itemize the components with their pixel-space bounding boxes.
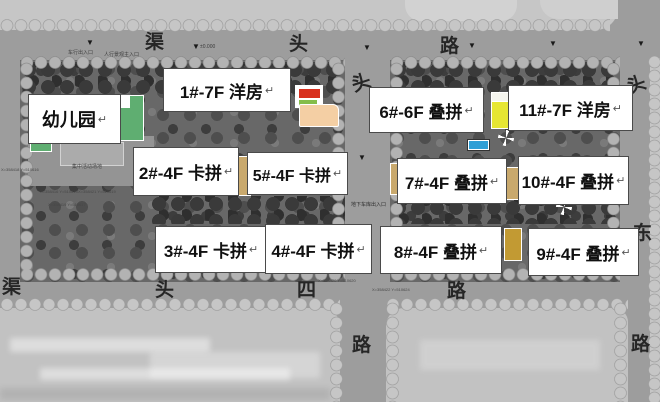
tree-row — [386, 302, 399, 402]
survey-coordinate: X=358421 Y=510619 — [78, 190, 116, 194]
return-mark: ↵ — [265, 84, 274, 97]
return-mark: ↵ — [613, 102, 622, 115]
pinwheel-icon — [498, 130, 514, 146]
peach-building-highlight — [299, 104, 339, 127]
building-label: 10#-4F 叠拼 — [522, 168, 615, 193]
entrance-annotation: 车行出入口 — [68, 51, 93, 57]
label-box-building-2: 2#-4F 卡拼↵ — [133, 147, 239, 196]
building-label: 4#-4F 卡拼 — [271, 237, 354, 262]
return-mark: ↵ — [98, 113, 107, 126]
gold-building-highlight — [504, 228, 522, 261]
building-label: 2#-4F 卡拼 — [139, 159, 222, 184]
building-label: 8#-4F 叠拼 — [394, 238, 477, 263]
label-box-building-10: 10#-4F 叠拼↵ — [518, 156, 629, 205]
label-box-building-6: 6#-6F 叠拼↵ — [369, 87, 484, 133]
road-label: 渠 — [145, 33, 164, 52]
survey-coordinate: X=358416 Y=510613 — [40, 190, 78, 194]
label-box-building-3: 3#-4F 卡拼↵ — [155, 226, 267, 273]
road-label: 渠 — [2, 278, 21, 297]
entrance-arrow-icon: ▼ — [363, 44, 371, 52]
return-mark: ↵ — [356, 243, 365, 256]
road-label: 路 — [440, 37, 459, 56]
road-label: 路 — [631, 335, 650, 354]
survey-coordinate: X=358419 Y=510617 — [48, 203, 86, 207]
site-plan-map: 渠 头 路 头 头 东 路 渠 头 四 路 路 ▼ ▼ ▼ ▼ ▼ ▼ ▼ 车行… — [0, 0, 660, 402]
road-label: 四 — [297, 281, 316, 300]
tree-row — [390, 56, 620, 69]
building-label: 1#-7F 洋房 — [180, 78, 263, 103]
cyan-pool-highlight — [468, 140, 489, 150]
road-label: 路 — [352, 336, 371, 355]
building-label: 3#-4F 卡拼 — [164, 237, 247, 262]
red-building-highlight — [298, 88, 321, 99]
entrance-arrow-icon: ▼ — [86, 39, 94, 47]
entrance-arrow-icon: ▼ — [358, 154, 366, 162]
label-box-kindergarten: 幼儿园↵ — [28, 94, 121, 144]
entrance-annotation: 人行景观主入口 — [104, 53, 139, 59]
survey-coordinate: X=358422 Y=510624 — [372, 288, 410, 292]
tree-row — [330, 302, 343, 402]
tree-row — [386, 298, 628, 311]
road-label: 路 — [447, 282, 466, 301]
city-block-north-patch — [405, 0, 517, 21]
label-box-building-7: 7#-4F 叠拼↵ — [397, 158, 507, 204]
tree-band-west — [150, 196, 345, 224]
tree-row — [614, 302, 627, 402]
return-mark: ↵ — [224, 165, 233, 178]
return-mark: ↵ — [479, 244, 488, 257]
building-label: 9#-4F 叠拼 — [536, 240, 619, 265]
entrance-arrow-icon: ▼ — [468, 42, 476, 50]
survey-coordinate: X=358420 Y=510620 — [318, 279, 356, 283]
return-mark: ↵ — [464, 104, 473, 117]
kindergarten-building-notch — [121, 96, 130, 108]
return-mark: ↵ — [490, 175, 499, 188]
building-label: 6#-6F 叠拼 — [379, 98, 462, 123]
elevation-annotation: ±0.000 — [200, 45, 215, 51]
label-box-building-8: 8#-4F 叠拼↵ — [380, 226, 502, 274]
city-block-north-patch-2 — [540, 0, 618, 19]
return-mark: ↵ — [616, 174, 625, 187]
label-box-building-5: 5#-4F 卡拼↵ — [247, 152, 348, 195]
ground-marking — [420, 340, 600, 370]
ground-shading — [0, 388, 330, 400]
return-mark: ↵ — [333, 167, 342, 180]
building-label: 7#-4F 叠拼 — [405, 169, 488, 194]
label-box-building-4: 4#-4F 卡拼↵ — [265, 224, 372, 274]
survey-coordinate: X=358418 Y=510616 — [1, 168, 39, 172]
entrance-arrow-icon: ▼ — [549, 40, 557, 48]
garage-entrance-annotation: 地下车库出入口 — [351, 203, 386, 209]
return-mark: ↵ — [249, 243, 258, 256]
label-box-building-11: 11#-7F 洋房↵ — [508, 85, 633, 131]
building-label: 11#-7F 洋房 — [519, 96, 611, 121]
entrance-arrow-icon: ▼ — [192, 43, 200, 51]
label-box-building-1: 1#-7F 洋房↵ — [163, 68, 291, 112]
ground-marking — [40, 368, 290, 380]
building-label: 5#-4F 卡拼 — [253, 162, 331, 186]
tan-building-highlight — [505, 167, 519, 200]
yard-annotation: 集中活动场地 — [72, 165, 102, 171]
road-label: 头 — [155, 281, 174, 300]
kindergarten-activity-building — [60, 142, 124, 166]
building-label: 幼儿园 — [42, 106, 96, 132]
road-left-edge — [0, 30, 20, 300]
ground-marking — [10, 338, 210, 352]
label-box-building-9: 9#-4F 叠拼↵ — [528, 228, 639, 276]
road-label: 头 — [289, 35, 308, 54]
entrance-arrow-icon: ▼ — [637, 40, 645, 48]
tree-row — [0, 19, 610, 32]
return-mark: ↵ — [621, 246, 630, 259]
